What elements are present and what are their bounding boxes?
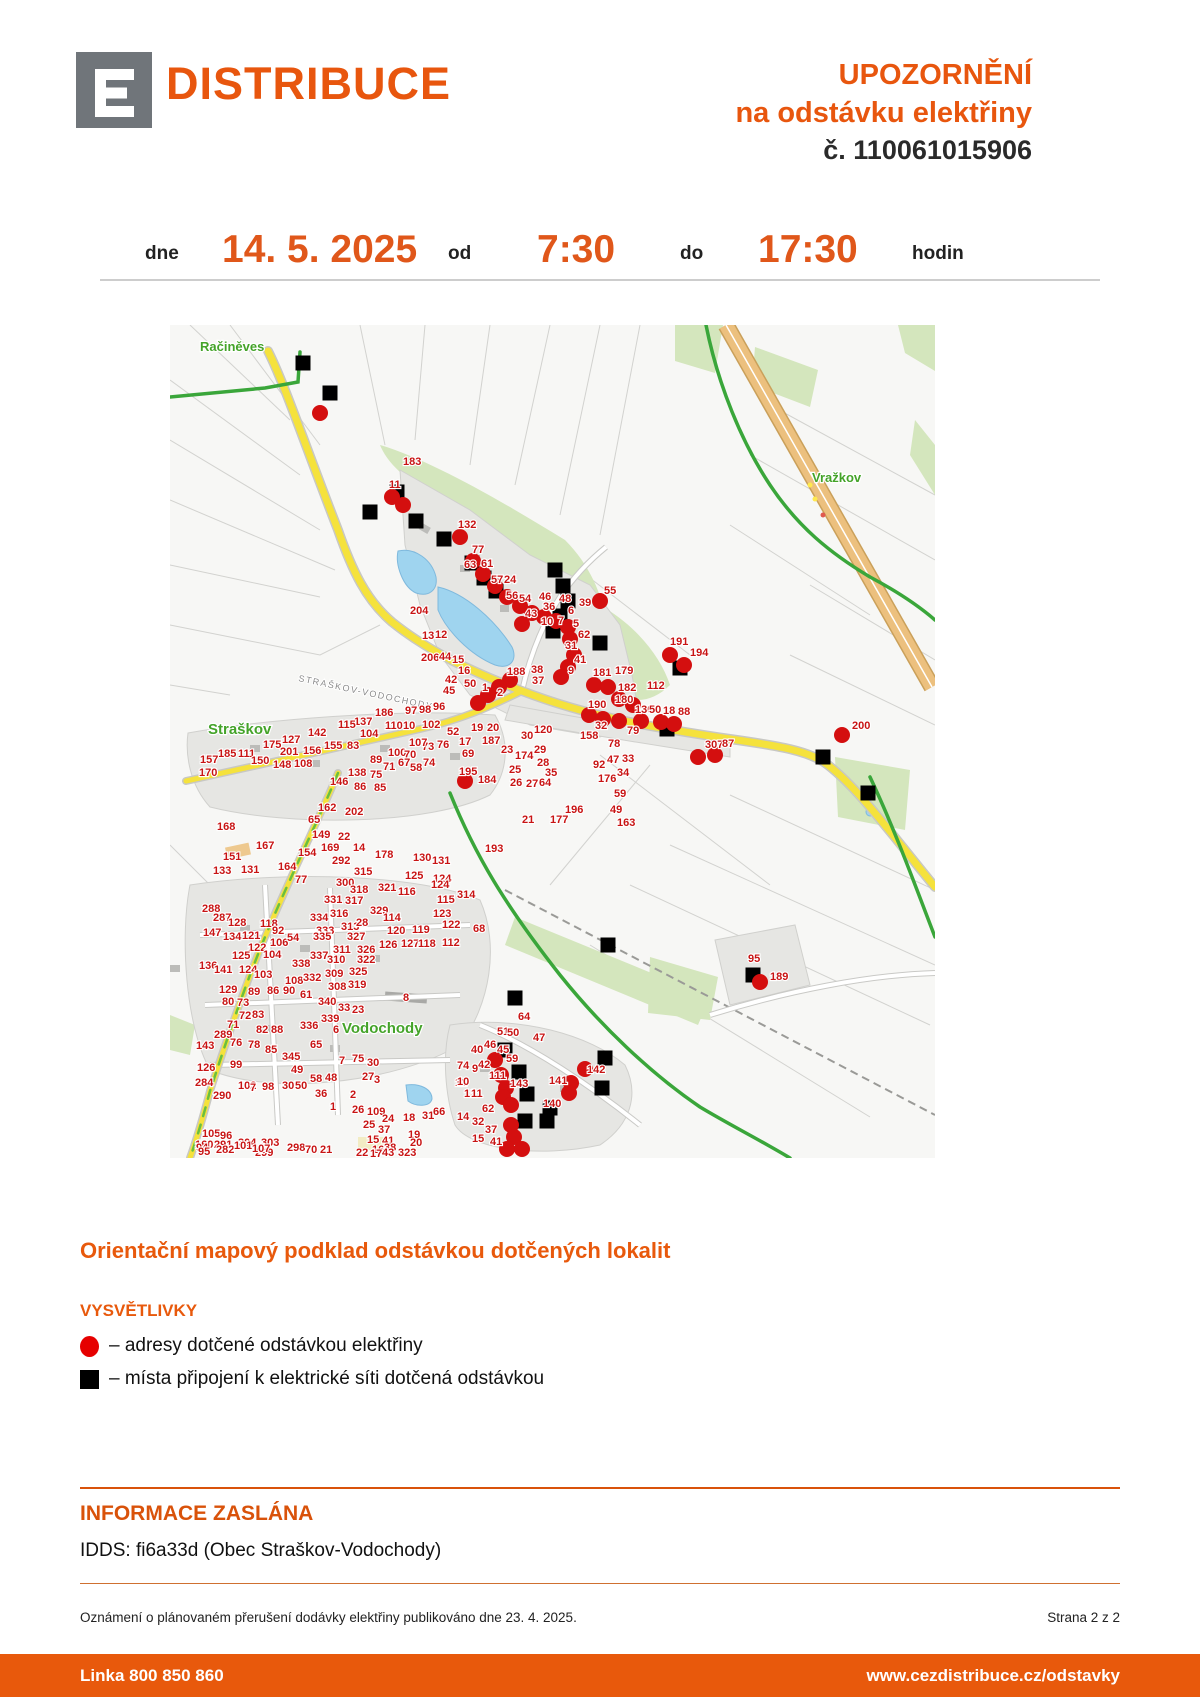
house-number: 103 xyxy=(254,969,272,981)
house-number: 105 xyxy=(202,1128,220,1140)
website-link[interactable]: www.cezdistribuce.cz/odstavky xyxy=(866,1666,1120,1686)
house-number: 190 xyxy=(588,699,606,711)
house-number: 124 xyxy=(431,879,450,891)
house-number: 88 xyxy=(271,1024,283,1036)
legend-item-label: – adresy dotčené odstávkou elektřiny xyxy=(109,1335,423,1357)
connection-point-icon xyxy=(816,750,831,765)
house-number: 95 xyxy=(748,953,760,965)
house-number: 174 xyxy=(515,750,534,762)
house-number: 58 xyxy=(310,1073,322,1085)
house-number: 30 xyxy=(367,1057,379,1069)
house-number: 179 xyxy=(615,665,633,677)
house-number: 307 xyxy=(705,739,723,751)
house-number: 18 xyxy=(663,705,675,717)
house-number: 321 xyxy=(378,882,396,894)
house-number: 112 xyxy=(647,680,665,692)
house-number: 41 xyxy=(574,654,586,666)
house-number: 168 xyxy=(217,821,235,833)
house-number: 45 xyxy=(443,685,455,697)
house-number: 149 xyxy=(312,829,330,841)
address-point-icon xyxy=(514,1141,530,1157)
house-number: 1 xyxy=(482,682,488,694)
house-number: 7 xyxy=(339,1055,345,1067)
house-number: 17 xyxy=(459,736,471,748)
house-number: 57 xyxy=(491,574,503,586)
connection-point-icon xyxy=(518,1114,533,1129)
house-number: 115 xyxy=(437,894,455,906)
house-number: 181 xyxy=(593,667,611,679)
house-number: 185 xyxy=(218,748,236,760)
house-number: 126 xyxy=(379,939,397,951)
legend-item-connections: – místa připojení k elektrické síti dotč… xyxy=(80,1368,544,1390)
house-number: 18 xyxy=(403,1112,415,1124)
house-number: 12 xyxy=(435,629,447,641)
house-number: 22 xyxy=(356,1147,368,1158)
house-number: 14 xyxy=(353,842,366,854)
house-number: 72 xyxy=(239,1010,251,1022)
connection-point-icon xyxy=(296,356,311,371)
house-number: 89 xyxy=(370,754,382,766)
house-number: 37 xyxy=(532,675,544,687)
house-number: 332 xyxy=(303,972,321,984)
house-number: 102 xyxy=(422,719,440,731)
house-number: 140 xyxy=(543,1098,561,1110)
house-number: 184 xyxy=(478,774,497,786)
house-number: 59 xyxy=(614,788,626,800)
time-to: 17:30 xyxy=(758,228,858,272)
house-number: 183 xyxy=(403,456,421,468)
house-number: 189 xyxy=(770,971,788,983)
house-number: 17 xyxy=(370,1148,382,1158)
house-number: 65 xyxy=(310,1039,322,1051)
house-number: 79 xyxy=(627,725,639,737)
place-label: Račiněves xyxy=(200,339,264,354)
house-number: 23 xyxy=(501,744,513,756)
house-number: 86 xyxy=(354,781,366,793)
address-point-icon xyxy=(662,647,678,663)
address-point-icon xyxy=(586,677,602,693)
od-label: od xyxy=(448,243,471,265)
connection-point-icon xyxy=(593,636,608,651)
house-number: 15 xyxy=(472,1133,484,1145)
footer-bar: Linka 800 850 860 www.cezdistribuce.cz/o… xyxy=(0,1654,1200,1697)
house-number: 129 xyxy=(219,984,237,996)
house-number: 325 xyxy=(349,966,367,978)
house-number: 61 xyxy=(481,558,493,570)
house-number: 54 xyxy=(519,593,532,605)
house-number: 345 xyxy=(282,1051,300,1063)
place-label: Vodochody xyxy=(342,1020,423,1037)
house-number: 43 xyxy=(382,1147,394,1158)
house-number: 125 xyxy=(405,870,423,882)
house-number: 96 xyxy=(433,701,445,713)
house-number: 292 xyxy=(332,855,350,867)
address-point-icon xyxy=(666,716,682,732)
house-number: 104 xyxy=(360,728,379,740)
house-number: 337 xyxy=(310,950,328,962)
house-number: 143 xyxy=(510,1078,528,1090)
house-number: 89 xyxy=(248,986,260,998)
house-number: 186 xyxy=(375,707,393,719)
house-number: 143 xyxy=(196,1040,214,1052)
house-number: 96 xyxy=(220,1130,232,1142)
house-number: 141 xyxy=(214,964,232,976)
address-point-icon xyxy=(690,749,706,765)
house-number: 114 xyxy=(383,912,402,924)
address-point-icon xyxy=(611,713,627,729)
house-number: 11 xyxy=(471,1088,483,1100)
house-number: 25 xyxy=(509,764,521,776)
house-number: 110 xyxy=(385,720,403,732)
house-number: 9 xyxy=(568,665,574,677)
dne-label: dne xyxy=(145,243,179,265)
house-number: 46 xyxy=(484,1039,496,1051)
info-idds: IDDS: fi6a33d (Obec Straškov-Vodochody) xyxy=(80,1540,441,1562)
house-number: 118 xyxy=(418,938,436,950)
house-number: 188 xyxy=(507,666,525,678)
house-number: 155 xyxy=(324,740,342,752)
house-number: 23 xyxy=(352,1004,364,1016)
info-title: INFORMACE ZASLÁNA xyxy=(80,1502,313,1526)
house-number: 120 xyxy=(534,724,552,736)
connection-point-icon xyxy=(556,579,571,594)
house-number: 127 xyxy=(282,734,300,746)
house-number: 83 xyxy=(252,1009,264,1021)
address-point-icon xyxy=(395,497,411,513)
house-number: 176 xyxy=(598,773,616,785)
brand-name: DISTRIBUCE xyxy=(166,58,451,110)
house-number: 14 xyxy=(457,1111,470,1123)
house-number: 164 xyxy=(278,861,297,873)
house-number: 67 xyxy=(398,757,410,769)
do-label: do xyxy=(680,243,703,265)
footer-divider xyxy=(80,1583,1120,1584)
house-number: 107 xyxy=(252,1143,270,1155)
house-number: 134 xyxy=(223,931,242,943)
house-number: 19 xyxy=(471,722,483,734)
address-point-icon xyxy=(503,1097,519,1113)
house-number: 319 xyxy=(348,979,366,991)
house-number: 62 xyxy=(482,1103,494,1115)
house-number: 44 xyxy=(439,651,452,663)
hodin-label: hodin xyxy=(912,243,964,265)
house-number: 58 xyxy=(410,762,422,774)
legend-title: VYSVĚTLIVKY xyxy=(80,1301,197,1321)
house-number: 80 xyxy=(222,996,234,1008)
house-number: 47 xyxy=(533,1032,545,1044)
black-square-icon xyxy=(80,1370,99,1389)
legend-item-label: – místa připojení k elektrické síti dotč… xyxy=(109,1368,544,1390)
address-point-icon xyxy=(676,657,692,673)
connection-point-icon xyxy=(861,786,876,801)
house-number: 69 xyxy=(462,748,474,760)
house-number: 77 xyxy=(472,544,484,556)
house-number: 55 xyxy=(604,585,616,597)
house-number: 48 xyxy=(559,593,571,605)
house-number: 162 xyxy=(318,802,336,814)
house-number: 167 xyxy=(256,840,274,852)
house-number: 54 xyxy=(287,932,300,944)
house-number: 36 xyxy=(315,1088,327,1100)
house-number: 92 xyxy=(272,925,284,937)
house-number: 156 xyxy=(303,745,321,757)
house-number: 43 xyxy=(525,608,537,620)
house-number: 169 xyxy=(321,842,339,854)
house-number: 90 xyxy=(283,985,295,997)
notice-line2: na odstávku elektřiny xyxy=(560,94,1032,132)
house-number: 50 xyxy=(507,1027,519,1039)
outage-notice-page: DISTRIBUCE UPOZORNĚNÍ na odstávku elektř… xyxy=(0,0,1200,1697)
house-number: 73 xyxy=(237,997,249,1009)
house-number: 106 xyxy=(270,937,288,949)
address-point-icon xyxy=(312,405,328,421)
house-number: 62 xyxy=(578,629,590,641)
house-number: 98 xyxy=(419,704,431,716)
house-number: 77 xyxy=(295,874,307,886)
house-number: 323 xyxy=(398,1147,416,1158)
address-point-icon xyxy=(470,695,486,711)
house-number: 8 xyxy=(403,992,409,1004)
cez-logo-icon xyxy=(76,52,152,128)
house-number: 31 xyxy=(565,640,577,652)
house-number: 133 xyxy=(213,865,231,877)
house-number: 29 xyxy=(534,744,546,756)
house-number: 50 xyxy=(464,678,476,690)
house-number: 97 xyxy=(405,705,417,717)
house-number: 137 xyxy=(354,716,372,728)
house-number: 191 xyxy=(670,636,688,648)
map-canvas: RačiněvesVražkovStraškovVodochody STRAŠK… xyxy=(170,325,935,1158)
house-number: 33 xyxy=(338,1002,350,1014)
house-number: 11 xyxy=(389,479,401,491)
house-number: 120 xyxy=(387,925,405,937)
house-number: 151 xyxy=(223,851,241,863)
house-number: 76 xyxy=(437,739,449,751)
house-number: 316 xyxy=(330,908,348,920)
house-number: 74 xyxy=(457,1060,470,1072)
house-number: 315 xyxy=(354,866,372,878)
house-number: 115 xyxy=(338,719,356,731)
house-number: 314 xyxy=(457,889,476,901)
connection-point-icon xyxy=(595,1081,610,1096)
house-number: 39 xyxy=(579,597,591,609)
notice-heading: UPOZORNĚNÍ na odstávku elektřiny č. 1100… xyxy=(560,56,1032,168)
house-number: 122 xyxy=(442,919,460,931)
address-point-icon xyxy=(752,974,768,990)
house-number: 78 xyxy=(248,1039,260,1051)
house-number: 202 xyxy=(345,806,363,818)
house-number: 108 xyxy=(294,758,312,770)
page-number: Strana 2 z 2 xyxy=(820,1610,1120,1625)
house-number: 148 xyxy=(273,759,291,771)
house-number: 21 xyxy=(320,1144,332,1156)
house-number: 132 xyxy=(458,519,476,531)
house-number: 112 xyxy=(442,937,460,949)
outage-map: RačiněvesVražkovStraškovVodochody STRAŠK… xyxy=(170,325,935,1158)
house-number: 10 xyxy=(541,616,553,628)
house-number: 157 xyxy=(200,754,218,766)
house-number: 340 xyxy=(318,996,336,1008)
house-number: 338 xyxy=(292,958,310,970)
house-number: 193 xyxy=(485,843,503,855)
house-number: 37 xyxy=(485,1124,497,1136)
connection-point-icon xyxy=(437,532,452,547)
house-number: 83 xyxy=(347,740,359,752)
house-number: 9 xyxy=(472,1063,478,1075)
schedule-divider xyxy=(100,279,1100,281)
house-number: 52 xyxy=(447,726,459,738)
house-number: 158 xyxy=(580,730,598,742)
notice-number: č. 110061015906 xyxy=(560,133,1032,169)
house-number: 20 xyxy=(487,722,499,734)
house-number: 95 xyxy=(198,1146,210,1158)
house-number: 327 xyxy=(347,931,365,943)
house-number: 33 xyxy=(622,753,634,765)
house-number: 61 xyxy=(300,989,312,1001)
house-number: 63 xyxy=(464,559,476,571)
house-number: 30 xyxy=(521,730,533,742)
address-point-icon xyxy=(600,679,616,695)
house-number: 201 xyxy=(280,746,298,758)
house-number: 131 xyxy=(241,864,259,876)
house-number: 182 xyxy=(618,682,636,694)
connection-point-icon xyxy=(540,1114,555,1129)
house-number: 119 xyxy=(412,924,430,936)
house-number: 2 xyxy=(497,687,503,699)
house-number: 78 xyxy=(608,738,620,750)
house-number: 177 xyxy=(550,814,568,826)
house-number: 138 xyxy=(348,767,366,779)
house-number: 26 xyxy=(510,777,522,789)
house-number: 2 xyxy=(350,1089,356,1101)
house-number: 125 xyxy=(232,950,250,962)
house-number: 154 xyxy=(298,847,317,859)
house-number: 127 xyxy=(401,938,419,950)
house-number: 163 xyxy=(617,817,635,829)
house-number: 24 xyxy=(504,574,517,586)
house-number: 200 xyxy=(852,720,870,732)
address-point-icon xyxy=(452,529,468,545)
house-number: 59 xyxy=(506,1053,518,1065)
house-number: 7 xyxy=(558,615,564,627)
house-number: 180 xyxy=(615,694,633,706)
house-number: 66 xyxy=(433,1106,445,1118)
connection-point-icon xyxy=(601,938,616,953)
house-number: 335 xyxy=(313,931,331,943)
house-number: 194 xyxy=(690,647,709,659)
house-number: 32 xyxy=(472,1116,484,1128)
house-number: 170 xyxy=(199,767,217,779)
house-number: 290 xyxy=(213,1090,231,1102)
outage-date: 14. 5. 2025 xyxy=(222,228,417,272)
house-number: 76 xyxy=(230,1037,242,1049)
house-number: 6 xyxy=(333,1024,339,1036)
house-number: 206 xyxy=(421,652,439,664)
house-number: 86 xyxy=(267,985,279,997)
house-number: 10 xyxy=(403,720,415,732)
house-number: 308 xyxy=(328,981,346,993)
house-number: 47 xyxy=(607,754,619,766)
place-label: Straškov xyxy=(208,721,272,738)
connection-point-icon xyxy=(548,563,563,578)
house-number: 21 xyxy=(522,814,534,826)
house-number: 187 xyxy=(482,735,500,747)
house-number: 310 xyxy=(327,954,345,966)
house-number: 126 xyxy=(197,1062,215,1074)
house-number: 121 xyxy=(242,930,260,942)
house-number: 34 xyxy=(617,767,630,779)
house-number: 107 xyxy=(409,737,427,749)
red-dot-icon xyxy=(80,1336,99,1357)
house-number: 13 xyxy=(422,630,434,642)
house-number: 147 xyxy=(203,927,221,939)
house-number: 98 xyxy=(262,1081,274,1093)
house-number: 49 xyxy=(610,804,622,816)
house-number: 25 xyxy=(363,1119,375,1131)
house-number: 92 xyxy=(593,759,605,771)
house-number: 65 xyxy=(308,814,320,826)
house-number: 204 xyxy=(410,605,429,617)
house-number: 40 xyxy=(471,1044,483,1056)
house-number: 22 xyxy=(338,831,350,843)
house-number: 75 xyxy=(352,1053,364,1065)
connection-point-icon xyxy=(409,514,424,529)
house-number: 7 xyxy=(250,1082,256,1094)
house-number: 56 xyxy=(506,590,518,602)
house-number: 50 xyxy=(295,1080,307,1092)
house-number: 28 xyxy=(356,917,368,929)
house-number: 75 xyxy=(370,769,382,781)
house-number: 128 xyxy=(228,917,246,929)
house-number: 64 xyxy=(518,1011,531,1023)
house-number: 49 xyxy=(291,1064,303,1076)
house-number: 27 xyxy=(362,1071,374,1083)
legend-item-addresses: – adresy dotčené odstávkou elektřiny xyxy=(80,1335,423,1357)
house-number: 1 xyxy=(330,1101,336,1113)
house-number: 130 xyxy=(413,852,431,864)
house-number: 175 xyxy=(263,739,281,751)
house-number: 284 xyxy=(195,1077,214,1089)
house-number: 104 xyxy=(263,949,282,961)
house-number: 336 xyxy=(300,1020,318,1032)
house-number: 85 xyxy=(374,782,386,794)
house-number: 10 xyxy=(457,1076,469,1088)
house-number: 36 xyxy=(543,601,555,613)
house-number: 317 xyxy=(345,895,363,907)
house-number: 88 xyxy=(678,706,690,718)
place-label: Vražkov xyxy=(812,470,862,485)
house-number: 150 xyxy=(251,755,269,767)
house-number: 131 xyxy=(432,855,450,867)
connection-point-icon xyxy=(323,386,338,401)
house-number: 16 xyxy=(458,665,470,677)
house-number: 116 xyxy=(398,886,416,898)
publication-note: Oznámení o plánovaném přerušení dodávky … xyxy=(80,1610,577,1625)
house-number: 282 xyxy=(216,1144,234,1156)
connection-point-icon xyxy=(508,991,523,1006)
house-number: 50 xyxy=(649,704,661,716)
house-number: 71 xyxy=(383,761,395,773)
house-number: 331 xyxy=(324,894,342,906)
house-number: 87 xyxy=(722,738,734,750)
address-point-icon xyxy=(834,727,850,743)
address-point-icon xyxy=(553,669,569,685)
house-number: 85 xyxy=(265,1044,277,1056)
house-number: 48 xyxy=(325,1072,337,1084)
notice-line1: UPOZORNĚNÍ xyxy=(560,56,1032,94)
info-divider xyxy=(80,1487,1120,1489)
house-number: 70 xyxy=(305,1144,317,1156)
